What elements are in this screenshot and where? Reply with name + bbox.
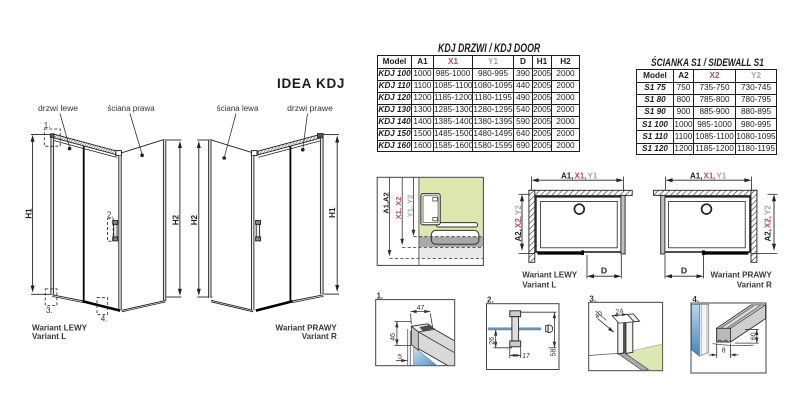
svg-text:ściana prawa: ściana prawa [107,104,155,113]
svg-text:X2,: X2, [763,216,772,228]
svg-text:Variant L: Variant L [32,332,66,341]
svg-text:1.: 1. [44,121,51,130]
svg-text:47: 47 [417,305,425,312]
svg-text:H2: H2 [171,214,180,225]
svg-text:X2,: X2, [514,216,523,228]
svg-text:ściana lewa: ściana lewa [217,104,259,113]
svg-text:A2,: A2, [763,229,772,241]
svg-text:H1: H1 [328,207,337,218]
svg-text:H1: H1 [24,208,33,219]
svg-text:Y2: Y2 [514,205,523,215]
svg-text:3.: 3. [46,306,53,315]
svg-text:D: D [681,266,687,276]
svg-text:24: 24 [615,308,624,316]
svg-text:60: 60 [750,332,757,340]
svg-text:2.: 2. [487,295,494,304]
svg-text:A1,: A1, [690,171,702,180]
svg-text:Y1, Y2: Y1, Y2 [405,195,414,218]
svg-text:58: 58 [551,349,558,357]
svg-text:5: 5 [398,354,402,361]
svg-text:A1,: A1, [561,171,573,180]
svg-text:H2: H2 [190,214,199,225]
svg-text:X1, X2: X1, X2 [394,197,403,220]
svg-text:8: 8 [722,348,726,355]
svg-text:Wariant PRAWY: Wariant PRAWY [710,270,772,279]
svg-text:46: 46 [390,333,397,341]
svg-text:drzwi lewe: drzwi lewe [38,103,78,113]
svg-text:Y1: Y1 [588,171,598,180]
svg-text:A2,: A2, [514,229,523,241]
svg-text:Y1: Y1 [717,171,727,180]
svg-text:Variant R: Variant R [737,281,772,290]
svg-text:Wariant LEWY: Wariant LEWY [522,270,578,279]
svg-text:Y2: Y2 [763,205,772,215]
svg-text:X1,: X1, [704,171,716,180]
svg-text:Variant R: Variant R [302,332,337,341]
svg-text:17: 17 [522,353,530,360]
svg-text:A1,A2: A1,A2 [382,192,391,214]
svg-text:drzwi prawe: drzwi prawe [287,103,333,113]
svg-text:D: D [601,266,607,276]
svg-text:X1,: X1, [575,171,587,180]
svg-text:2.: 2. [107,211,114,220]
svg-text:26: 26 [489,337,496,345]
svg-text:Variant L: Variant L [522,281,556,290]
svg-text:4.: 4. [101,315,108,324]
